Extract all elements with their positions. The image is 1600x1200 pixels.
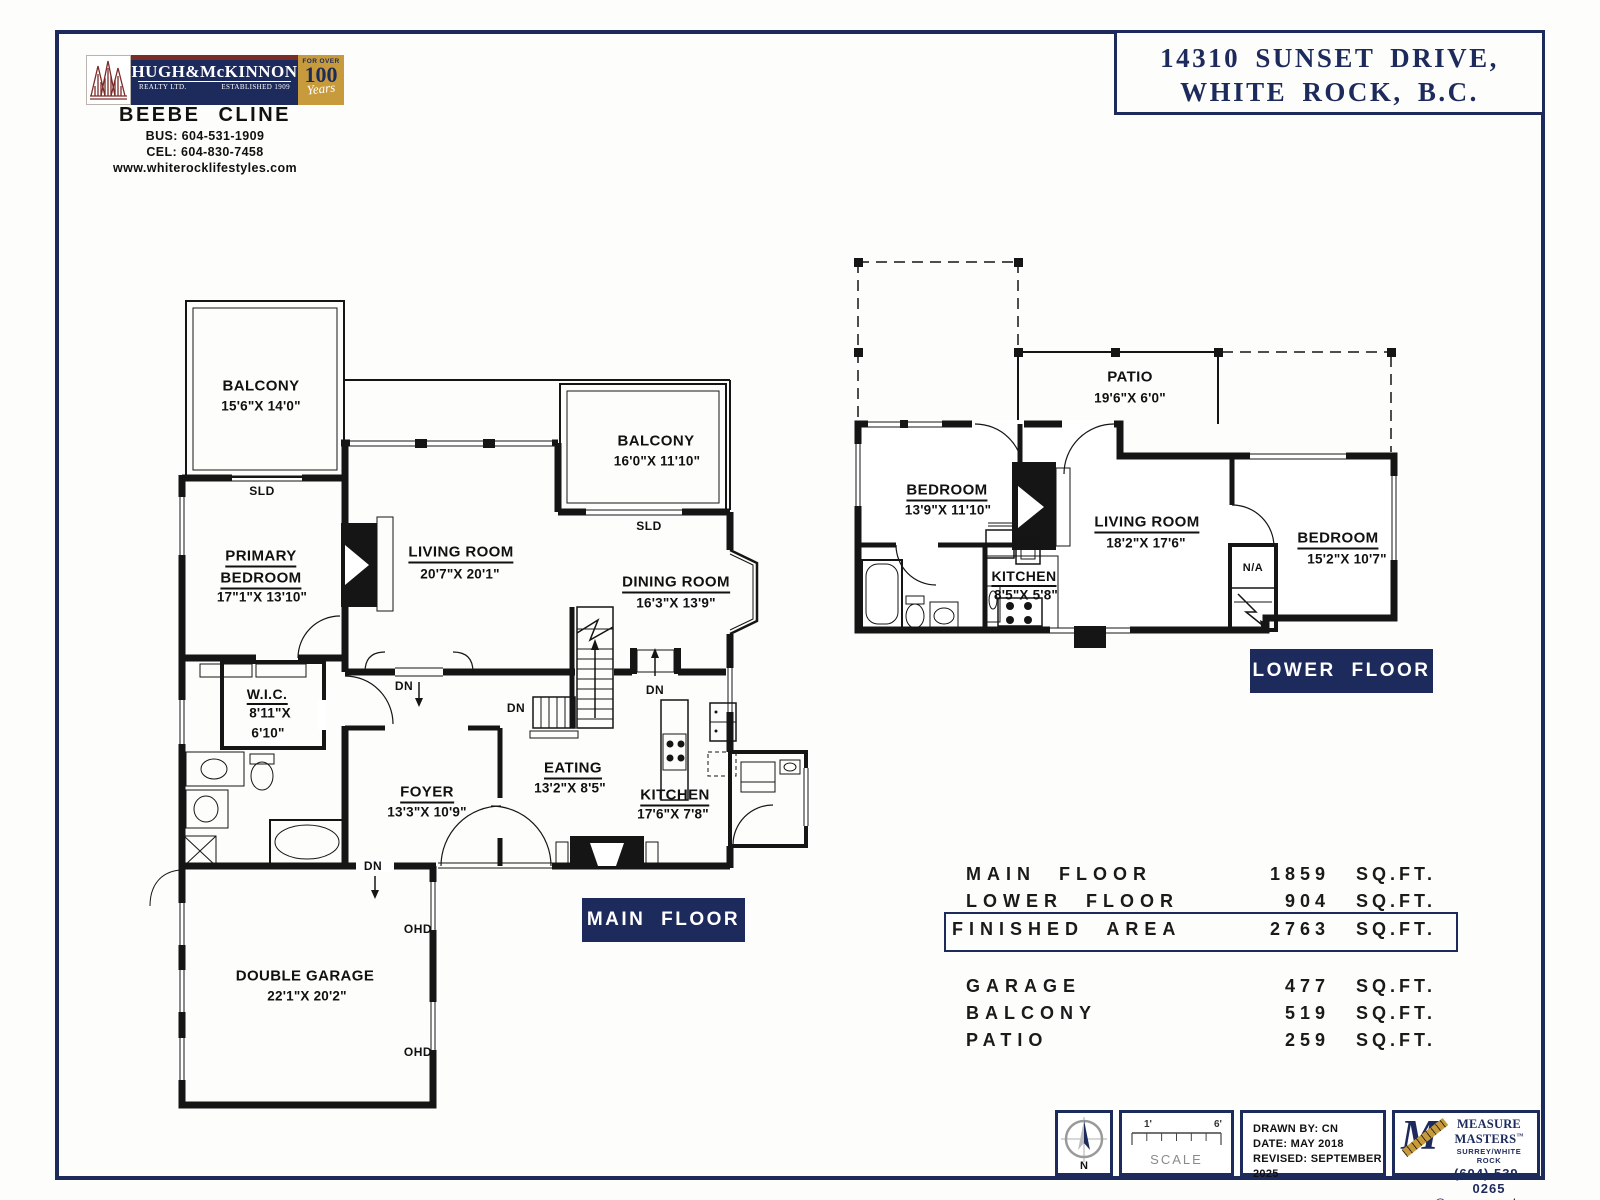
address-line2: WHITE ROCK, B.C.: [1117, 75, 1542, 109]
room-dims-kitchen-lower: 8'5"X 5'8": [994, 588, 1058, 603]
room-label-primary-2: BEDROOM: [220, 570, 301, 590]
area-row-lower-unit: SQ.FT.: [1356, 891, 1436, 912]
room-label-garage: DOUBLE GARAGE: [236, 968, 375, 985]
scale-right-label: 6': [1214, 1119, 1222, 1130]
area-row-patio-value: 259: [1180, 1030, 1330, 1051]
brokerage-established: ESTABLISHED 1909: [221, 83, 290, 91]
scale-cell: 1' 6' SCALE: [1119, 1110, 1234, 1176]
room-label-kitchen-lower: KITCHEN: [991, 568, 1056, 587]
room-label-primary-1: PRIMARY: [225, 548, 296, 568]
property-address-box: 14310 SUNSET DRIVE, WHITE ROCK, B.C.: [1114, 30, 1545, 115]
lower-floor-badge: LOWER FLOOR: [1250, 649, 1433, 693]
area-row-finished-value: 2763: [1180, 919, 1330, 940]
brokerage-logo: HUGH&McKINNON REALTY LTD. ESTABLISHED 19…: [86, 55, 344, 105]
room-dims-bedroom1: 13'9"X 11'10": [905, 503, 991, 518]
brokerage-name: HUGH&McKINNON: [131, 63, 298, 80]
room-label-foyer: FOYER: [400, 784, 454, 804]
agent-cel-phone: CEL: 604-830-7458: [80, 145, 330, 159]
brokerage-name-panel: HUGH&McKINNON REALTY LTD. ESTABLISHED 19…: [131, 55, 298, 105]
area-row-lower-label: LOWER FLOOR: [966, 891, 1179, 912]
area-row-lower-value: 904: [1180, 891, 1330, 912]
sld-label-primary: SLD: [249, 484, 275, 498]
north-compass-icon: [1058, 1116, 1110, 1164]
scale-left-label: 1': [1144, 1119, 1152, 1130]
room-dims-balcony2: 16'0"X 11'10": [614, 454, 700, 469]
area-row-garage-value: 477: [1180, 976, 1330, 997]
main-floor-badge: MAIN FLOOR: [582, 898, 745, 942]
room-dims-eating: 13'2"X 8'5": [534, 781, 606, 796]
dn-label-living: DN: [395, 679, 413, 693]
area-row-finished-label: FINISHED AREA: [952, 919, 1181, 940]
measure-masters-cell: M MEASURE MASTERS™ SURREY/WHITE ROCK (60…: [1392, 1110, 1540, 1176]
area-row-balcony-value: 519: [1180, 1003, 1330, 1024]
room-label-bedroom2: BEDROOM: [1297, 530, 1378, 550]
agent-block: BEEBE CLINE BUS: 604-531-1909 CEL: 604-8…: [80, 104, 330, 175]
measure-masters-phone: (604) 539-0265: [1445, 1166, 1533, 1196]
room-label-eating: EATING: [544, 760, 602, 780]
room-label-dining: DINING ROOM: [622, 574, 730, 594]
drawn-by: DRAWN BY: CN: [1253, 1122, 1383, 1137]
area-row-garage-label: GARAGE: [966, 976, 1081, 997]
room-dims-living-main: 20'7"X 20'1": [420, 567, 499, 582]
area-row-balcony-unit: SQ.FT.: [1356, 1003, 1436, 1024]
room-label-bedroom1: BEDROOM: [906, 482, 987, 502]
agent-website[interactable]: www.whiterocklifestyles.com: [80, 161, 330, 175]
scale-ruler-icon: [1122, 1127, 1231, 1153]
area-row-patio-label: PATIO: [966, 1030, 1048, 1051]
room-dims-wic-2: 6'10": [251, 726, 284, 741]
area-row-main-value: 1859: [1180, 864, 1330, 885]
anniversary-badge: FOR OVER 100 Years: [298, 55, 344, 105]
area-row-balcony-label: BALCONY: [966, 1003, 1097, 1024]
room-dims-living-lower: 18'2"X 17'6": [1106, 536, 1185, 551]
room-dims-kitchen-main: 17'6"X 7'8": [637, 807, 709, 822]
room-dims-primary: 17"1"X 13'10": [217, 590, 307, 605]
room-label-living-lower: LIVING ROOM: [1094, 514, 1199, 534]
agent-bus-phone: BUS: 604-531-1909: [80, 129, 330, 143]
measure-masters-logo-icon: M: [1401, 1117, 1445, 1157]
room-label-balcony2: BALCONY: [618, 433, 695, 450]
dn-label-entry: DN: [364, 859, 382, 873]
room-dims-dining: 16'3"X 13'9": [636, 596, 715, 611]
room-label-patio: PATIO: [1107, 369, 1153, 386]
agent-name: BEEBE CLINE: [80, 104, 330, 127]
brokerage-houses-icon: [86, 55, 131, 105]
room-dims-garage: 22'1"X 20'2": [267, 989, 346, 1004]
badge-years: Years: [297, 79, 344, 100]
revised-date: REVISED: SEPTEMBER 2025: [1253, 1152, 1383, 1182]
logo-stripe: [131, 55, 298, 60]
room-label-kitchen-main: KITCHEN: [640, 787, 709, 807]
drawing-info-cell: DRAWN BY: CN DATE: MAY 2018 REVISED: SEP…: [1240, 1110, 1386, 1176]
compass-cell: N: [1055, 1110, 1113, 1176]
room-label-wic: W.I.C.: [247, 686, 288, 705]
dn-label-kitchen: DN: [646, 683, 664, 697]
room-dims-balcony1: 15'6"X 14'0": [221, 399, 300, 414]
measure-masters-name: MEASURE MASTERS™: [1445, 1117, 1533, 1147]
area-row-main-label: MAIN FLOOR: [966, 864, 1152, 885]
floorplan-sheet: BALCONY 15'6"X 14'0" BALCONY 16'0"X 11'1…: [0, 0, 1600, 1200]
area-row-garage-unit: SQ.FT.: [1356, 976, 1436, 997]
area-row-finished-unit: SQ.FT.: [1356, 919, 1436, 940]
sld-label-dining: SLD: [636, 519, 662, 533]
room-dims-bedroom2: 15'2"X 10'7": [1307, 552, 1386, 567]
room-dims-foyer: 13'3"X 10'9": [387, 805, 466, 820]
brokerage-realty: REALTY LTD.: [139, 83, 187, 91]
scale-word: SCALE: [1122, 1152, 1231, 1167]
drawn-date: DATE: MAY 2018: [1253, 1137, 1383, 1152]
area-row-main-unit: SQ.FT.: [1356, 864, 1436, 885]
ohd-label-2: OHD: [404, 1045, 432, 1059]
na-label: N/A: [1243, 562, 1263, 574]
address-line1: 14310 SUNSET DRIVE,: [1117, 41, 1542, 75]
measure-masters-region: SURREY/WHITE ROCK: [1445, 1147, 1533, 1165]
ohd-label-1: OHD: [404, 922, 432, 936]
room-label-living-main: LIVING ROOM: [408, 544, 513, 564]
area-row-patio-unit: SQ.FT.: [1356, 1030, 1436, 1051]
dn-label-stairs: DN: [507, 701, 525, 715]
compass-n-label: N: [1058, 1160, 1110, 1172]
room-dims-patio: 19'6"X 6'0": [1094, 391, 1166, 406]
room-label-balcony1: BALCONY: [223, 378, 300, 395]
room-dims-wic-1: 8'11"X: [249, 706, 291, 721]
